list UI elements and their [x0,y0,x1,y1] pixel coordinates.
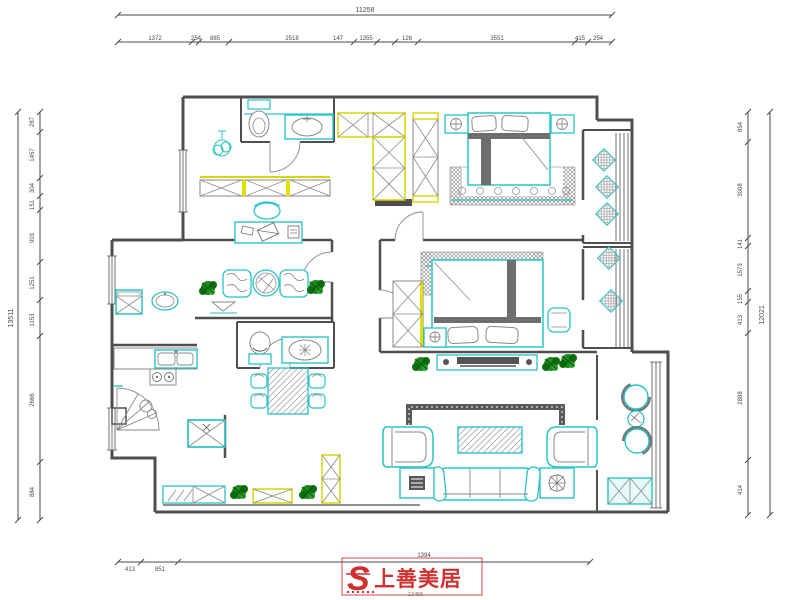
dim-right-seg: 3008 [738,183,744,197]
desk [235,222,302,243]
brand-logo: S 上善美居 13455 [342,558,482,598]
bathroom-1 [213,100,334,156]
dim-bottom-seg: 413 [125,567,136,573]
alcove-armchair [280,270,308,297]
alcove-armchair [223,270,251,297]
plant-icon [199,281,217,295]
dim-right-seg: 155 [738,293,744,304]
wardrobe-x-icon [393,281,423,347]
dim-bottom-seg: 851 [155,567,166,573]
dim-top-seg: 415 [575,36,586,42]
nightstand-lamp-icon [424,328,446,347]
tv-feature-wall [409,407,562,425]
toilet-icon [249,332,271,364]
armchair-icon [547,427,597,467]
closet-wardrobes [338,113,438,202]
tv-console-icon [437,355,537,370]
dim-left-seg: 287 [30,116,36,127]
dim-left-seg: 2666 [30,393,36,407]
plant-icon [412,357,430,371]
tall-cabinet [322,455,340,503]
dim-top-seg: 1372 [148,36,162,42]
pilaster [112,408,126,424]
cabinet-row [200,180,330,196]
dining-chair [309,374,325,388]
dining-chair [309,394,325,408]
dim-top-seg: 254 [593,36,604,42]
dim-left-seg: 1457 [30,148,36,162]
dim-top-seg: 126 [402,36,413,42]
plant-icon [299,485,317,499]
sink-icon [285,115,333,139]
dim-right-seg: 1573 [738,263,744,277]
bed-icon [468,113,550,185]
dim-left-seg: 1251 [30,276,36,290]
cushion-diamond-icon [600,290,623,313]
cushion-diamond-icon [593,149,616,172]
dim-left-total: 13511 [8,308,15,327]
round-table-icon [628,411,644,427]
dim-right-total: 12021 [759,305,766,325]
dim-top-seg: 254 [191,36,202,42]
alcove-round-table [253,270,279,296]
bay-cushions [593,149,623,313]
toilet-icon [248,100,270,137]
window-upper-left [178,150,188,212]
stove-icon [150,369,176,385]
sofa-icon [430,466,540,501]
dim-top-seg: 147 [333,36,344,42]
cushion-diamond-icon [596,176,619,199]
plant-icon [559,354,577,368]
dim-left-seg: 151 [30,199,36,210]
pendant-lamp-icon [213,131,231,156]
dim-top-seg: 1355 [359,36,373,42]
nightstand-lamp-icon [445,115,468,133]
dim-right-seg: 414 [738,484,744,495]
kitchen [113,348,225,447]
dim-top-total: 11258 [356,7,375,14]
round-chair-icon [623,384,650,411]
cushion-diamond-icon [598,247,621,270]
shoe-bench [163,486,225,503]
corner-shelf [212,302,235,311]
plant-icon [542,357,560,371]
door-master-bedroom [395,212,423,240]
round-chair-icon [624,428,651,455]
dimension-right: 854 3008 141 1573 155 413 2888 414 12021 [738,109,773,518]
side-table-plant [540,468,574,498]
dining-chair [251,394,267,408]
dim-top-seg: 885 [210,36,221,42]
dim-left-seg: 884 [30,486,36,497]
dining-room [251,368,325,414]
washing-machine-icon [116,290,142,314]
coffee-table-icon [458,427,522,453]
dim-left-seg: 304 [30,182,36,193]
balcony-leisure [608,384,652,505]
plant-icon [230,485,248,499]
dim-top-seg: 2518 [285,36,299,42]
door-bathroom-1 [270,142,300,172]
study-room [200,177,330,243]
dim-right-seg: 413 [738,314,744,325]
living-room [383,407,597,502]
kitchen-sink-icon [155,350,197,368]
dim-right-seg: 141 [738,238,744,249]
dim-left-seg: 1153 [30,313,36,327]
laundry-basin [152,292,178,310]
floorplan-drawing: 11258 1372 254 885 2518 147 1355 126 355… [0,0,800,600]
logo-brand-text: 上善美居 [374,567,462,591]
dimension-left: 13511 287 1457 304 151 903 1251 1153 266… [8,109,43,523]
sink-icon [282,337,328,363]
bathroom-2 [249,332,328,364]
dim-top-seg: 3551 [490,36,504,42]
bedroom-chair [548,308,570,332]
wardrobe-column [413,113,438,202]
bed-icon [432,260,543,347]
armchair-icon [383,427,433,467]
wardrobe-x-icon [338,113,405,200]
bedroom-2 [393,252,570,347]
logo-sub-number: 13455 [408,592,423,598]
master-bedroom [445,113,575,205]
shoe-cabinet-icon [253,489,292,503]
dim-right-seg: 854 [738,121,744,132]
floorplan-canvas: 11258 1372 254 885 2518 147 1355 126 355… [0,0,800,600]
dim-right-seg: 2888 [738,391,744,405]
nightstand-lamp-icon [551,115,574,133]
dining-chair [251,374,267,388]
desk-chair [254,202,280,219]
dimension-top: 11258 1372 254 885 2518 147 1355 126 355… [115,7,615,45]
dining-table-icon [268,368,308,414]
side-table-lamp [400,468,434,498]
balcony-cabinet [608,478,652,504]
dim-left-seg: 903 [30,232,36,243]
fridge-icon [188,420,225,447]
cushion-diamond-icon [596,203,619,226]
